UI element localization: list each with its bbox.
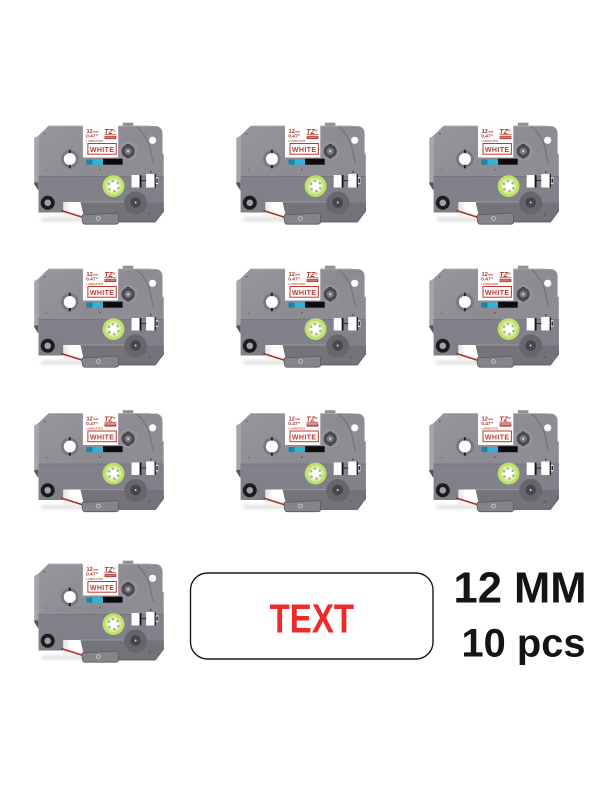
svg-text:12 MM: 12 MM xyxy=(454,564,587,613)
svg-text:10 pcs: 10 pcs xyxy=(462,622,586,666)
svg-text:TEXT: TEXT xyxy=(270,595,355,641)
